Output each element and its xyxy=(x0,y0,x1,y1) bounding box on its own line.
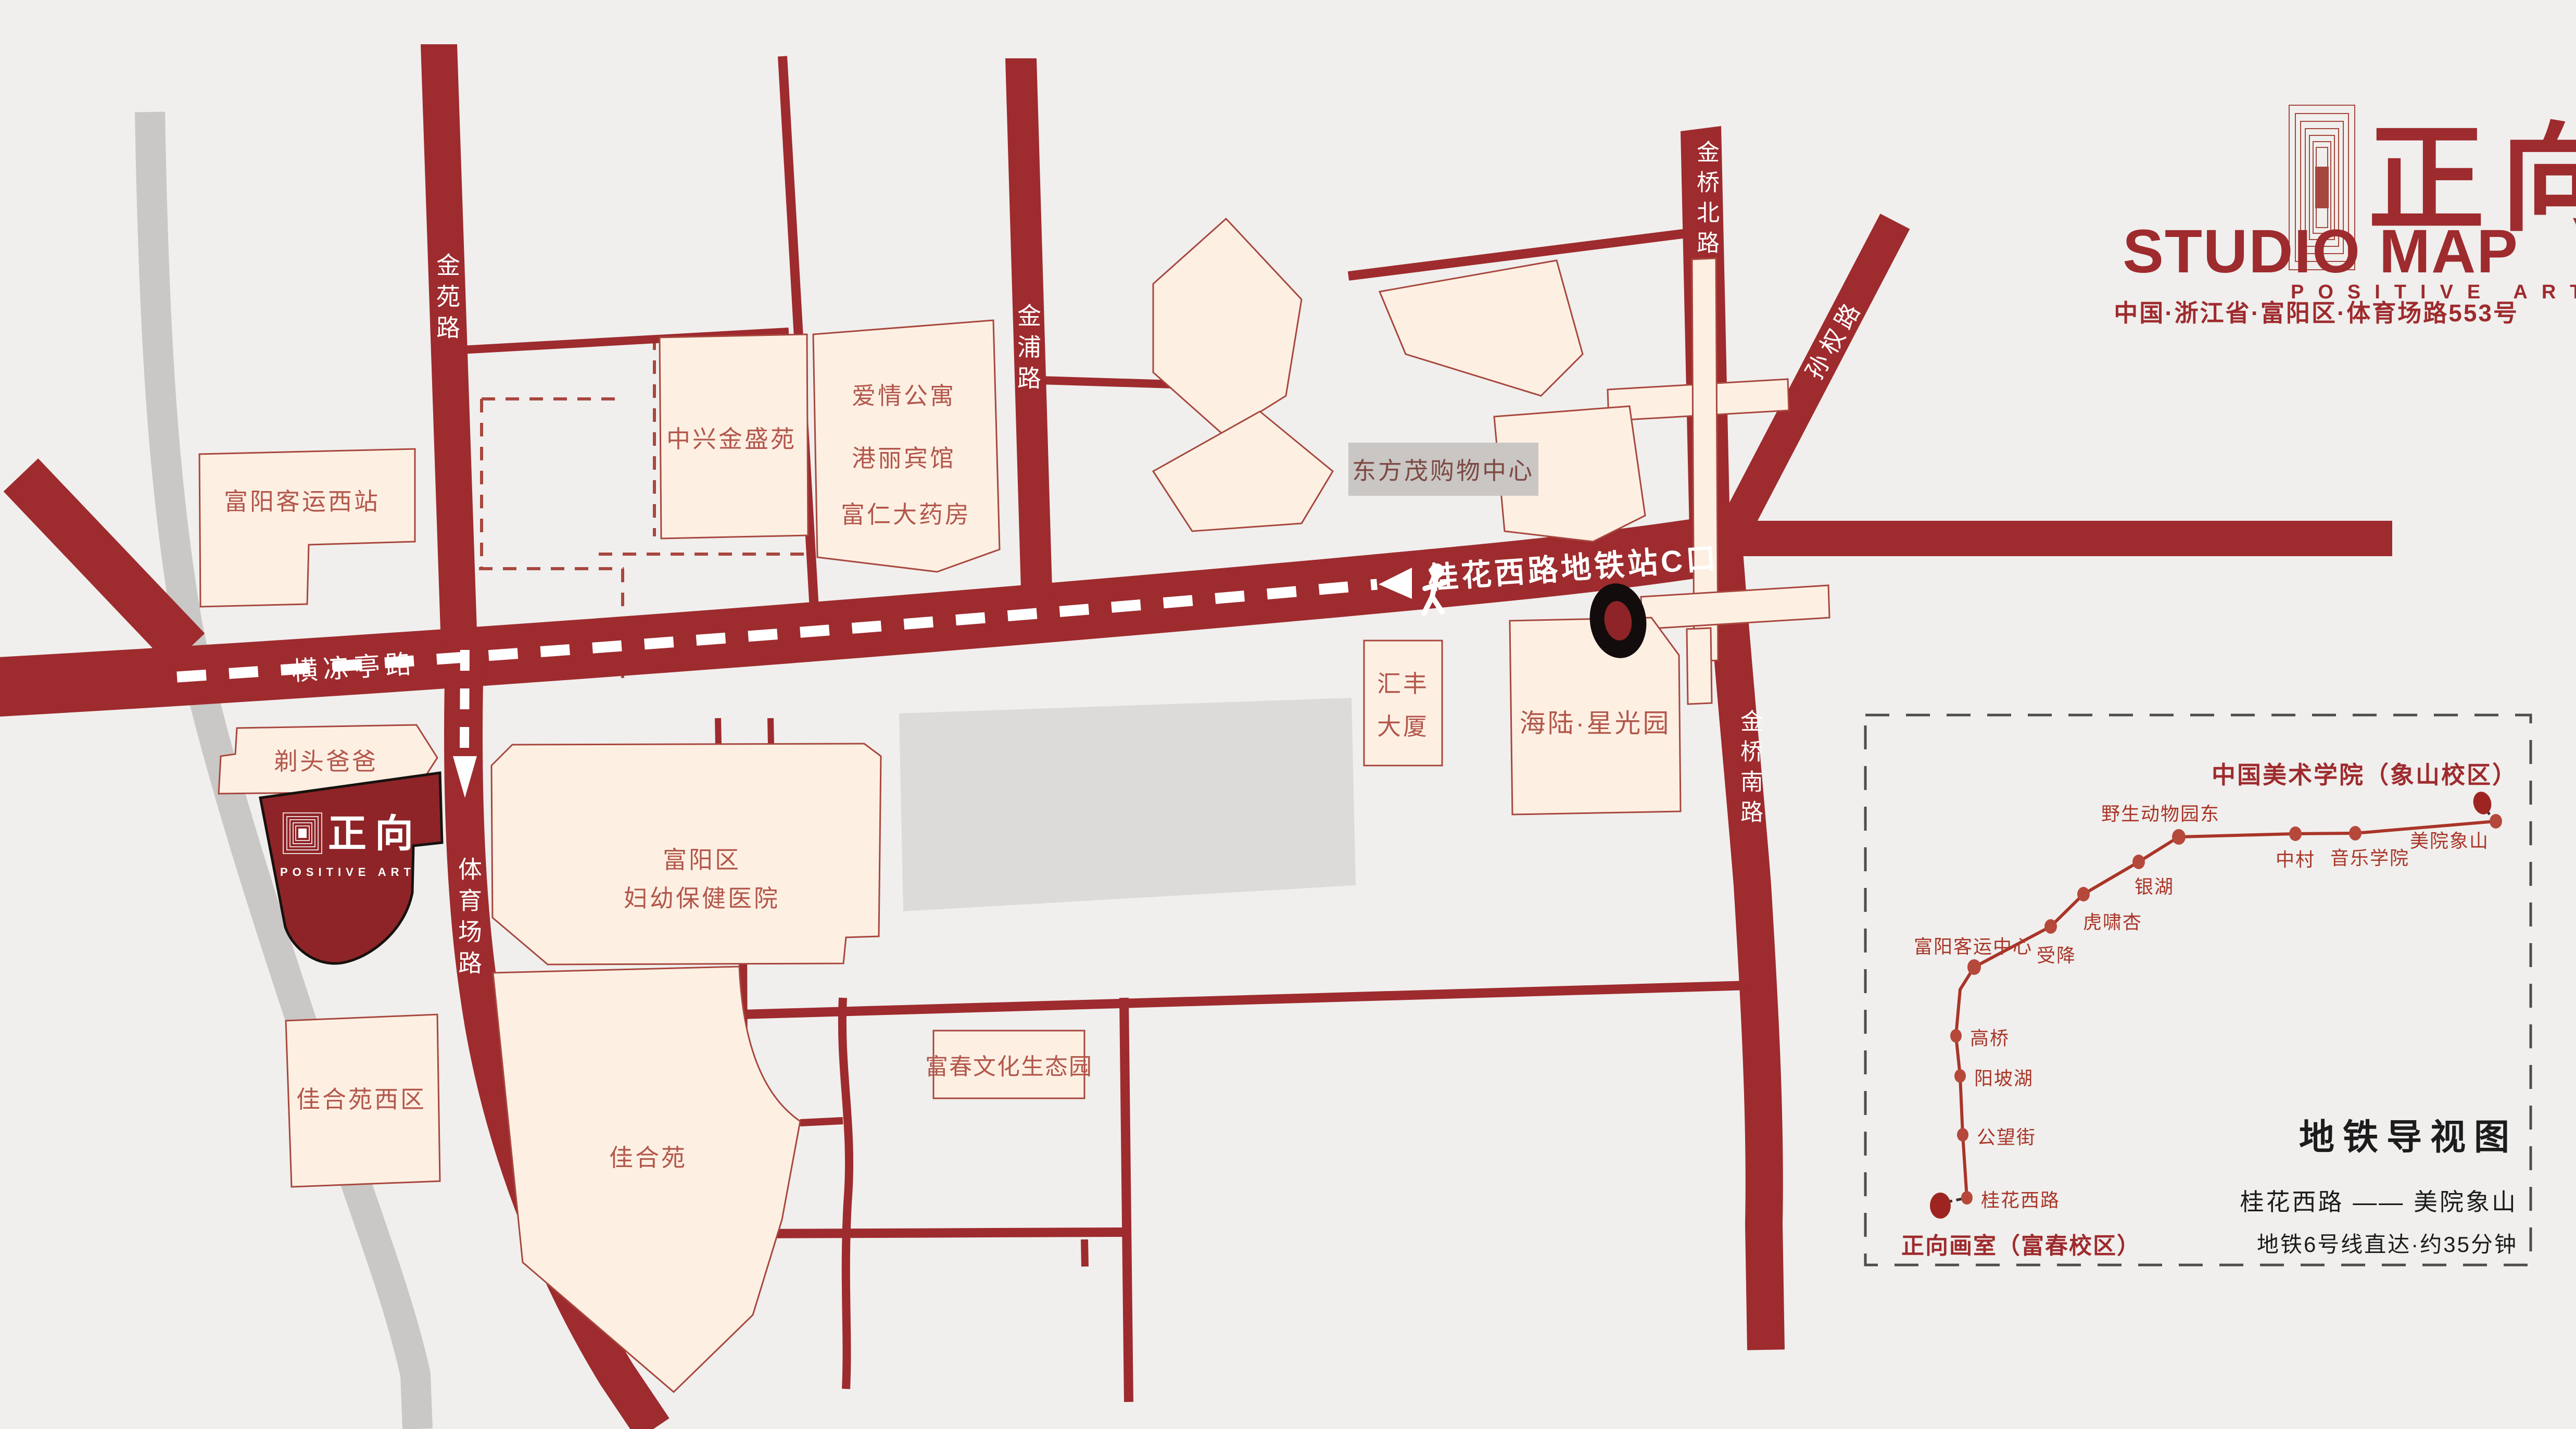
label-fuchun-park: 富春文化生态园 xyxy=(925,1048,1093,1081)
label-dongfangmao: 东方茂购物中心 xyxy=(1352,452,1534,486)
subway-note-text: 地铁6号线直达·约35分钟 xyxy=(2257,1227,2518,1259)
station-label-yeshengdongwuyuandong: 野生动物园东 xyxy=(2101,799,2220,826)
caa-terminus-dot xyxy=(2471,789,2494,816)
label-hailu: 海陆·星光园 xyxy=(1520,703,1671,740)
subway-panel-title: 地铁导视图 xyxy=(2299,1108,2518,1160)
building-jiaheyuan xyxy=(493,967,800,1392)
station-label-huxiaoxing: 虎啸杏 xyxy=(2083,907,2142,934)
page-title: STUDIO MAP xyxy=(2123,216,2519,287)
road-jinqiao-south xyxy=(1724,552,1766,1350)
label-gangli: 港丽宾馆 xyxy=(852,440,956,474)
studio-terminus-dot xyxy=(1930,1193,1951,1219)
station-label-meiyuanxiangshan: 美院象山 xyxy=(2410,826,2489,853)
building-huifeng xyxy=(1364,641,1442,766)
studio-address: 中国·浙江省·富阳区·体育场路553号 xyxy=(2114,294,2519,329)
station-label-yangpohu: 阳坡湖 xyxy=(1974,1063,2034,1090)
gray-block xyxy=(899,698,1356,911)
label-fuyang-west-station: 富阳客运西站 xyxy=(224,483,380,517)
station-label-gaoqiao: 高桥 xyxy=(1970,1023,2010,1050)
label-hospital-line1: 富阳区 xyxy=(663,841,741,875)
building-dfm-4 xyxy=(1153,411,1333,531)
station-label-yinhu: 银湖 xyxy=(2135,872,2174,899)
building-dfm-2 xyxy=(1380,260,1583,396)
road-label-jinqiao-south: 金桥南路 xyxy=(1733,709,1766,830)
label-zhongxing: 中兴金盛苑 xyxy=(666,420,797,455)
station-label-zhongcun: 中村 xyxy=(2276,845,2315,872)
label-titou: 剃头爸爸 xyxy=(274,743,378,777)
station-label-shoujiang: 受降 xyxy=(2037,941,2076,968)
studio-map-poster: 正向 POSITIVE ART STUDIO MAP 中国·浙江省·富阳区·体育… xyxy=(0,0,2576,1429)
studio-logo-icon xyxy=(283,812,322,854)
building-dfm-1 xyxy=(1153,219,1302,435)
subway-dest-title: 中国美术学院（象山校区） xyxy=(2212,756,2518,791)
subway-origin-label: 正向画室（富春校区） xyxy=(1901,1227,2141,1260)
label-aiqing: 爱情公寓 xyxy=(852,377,956,411)
label-jiaheyuan: 佳合苑 xyxy=(609,1139,687,1173)
label-hospital-line2: 妇幼保健医院 xyxy=(624,880,780,914)
studio-logo-text: 正向 xyxy=(328,814,422,853)
road-thin-6 xyxy=(1124,998,1129,1402)
subway-route-text: 桂花西路 —— 美院象山 xyxy=(2240,1183,2518,1218)
road-label-jinqiao-north: 金桥北路 xyxy=(1689,140,1722,261)
road-thin-7 xyxy=(842,998,849,1389)
road-label-tiyuchang: 体育场路 xyxy=(451,857,486,982)
station-label-fuyangkeyunzhongxin: 富阳客运中心 xyxy=(1914,932,2032,959)
label-huifeng-line2: 大厦 xyxy=(1377,708,1429,742)
road-label-jinpu: 金浦路 xyxy=(1011,303,1045,397)
road-label-jinyuan: 金苑路 xyxy=(430,253,464,346)
label-furen: 富仁大药房 xyxy=(841,496,971,530)
road-label-hengliangting: 横凉亭路 xyxy=(291,643,418,688)
studio-logo-subtext: POSITIVE ART xyxy=(280,866,415,879)
label-huifeng-line1: 汇丰 xyxy=(1377,665,1429,699)
station-label-gongwangjie: 公望街 xyxy=(1977,1122,2036,1149)
label-jiaheyuan-west: 佳合苑西区 xyxy=(296,1081,426,1115)
map-canvas xyxy=(0,0,2576,1429)
station-label-guihuaxilu: 桂花西路 xyxy=(1981,1185,2060,1212)
driveway-1 xyxy=(718,718,718,746)
driveway-2 xyxy=(771,718,771,746)
road-stub-1 xyxy=(1084,1239,1085,1267)
station-label-yinyuexueyuan: 音乐学院 xyxy=(2330,843,2409,870)
building-fuyang-west-station xyxy=(199,449,415,607)
road-stub-2 xyxy=(800,1121,843,1123)
